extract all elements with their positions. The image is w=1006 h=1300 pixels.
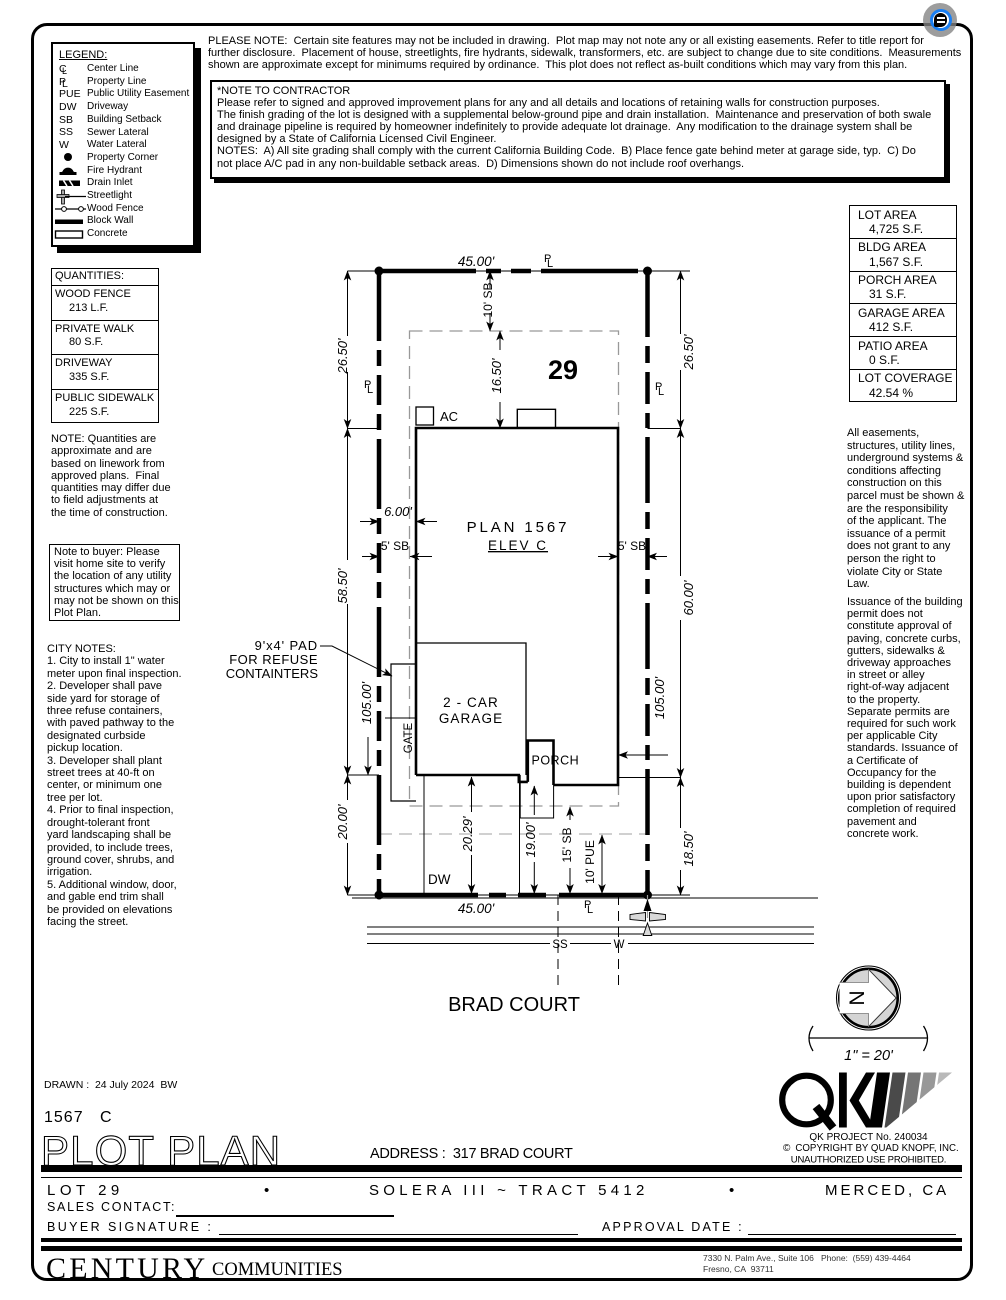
svg-text:QK PROJECT No. 240034: QK PROJECT No. 240034: [809, 1132, 928, 1143]
svg-text:26.50': 26.50': [335, 338, 350, 375]
svg-text:45.00': 45.00': [458, 901, 495, 916]
svg-text:DW: DW: [428, 872, 451, 887]
svg-text:6.00': 6.00': [384, 504, 412, 519]
svg-text:20.29': 20.29': [460, 816, 475, 853]
svg-text:2 - CAR: 2 - CAR: [443, 695, 499, 710]
svg-text:105.00': 105.00': [652, 676, 667, 719]
svg-text:L: L: [587, 904, 593, 916]
svg-text:20.00': 20.00': [335, 804, 350, 841]
svg-text:GATE: GATE: [403, 722, 415, 753]
svg-text:105.00': 105.00': [359, 681, 374, 724]
svg-text:SS: SS: [552, 939, 568, 951]
svg-text:FOR REFUSE: FOR REFUSE: [229, 652, 318, 667]
svg-text:10' SB: 10' SB: [481, 283, 495, 318]
svg-text:5' SB: 5' SB: [618, 539, 646, 553]
svg-text:BRAD COURT: BRAD COURT: [448, 994, 580, 1016]
svg-text:45.00': 45.00': [458, 254, 495, 269]
svg-text:29: 29: [548, 355, 578, 385]
svg-text:19.00': 19.00': [523, 822, 538, 858]
svg-text:ELEV C: ELEV C: [488, 538, 548, 553]
svg-text:26.50': 26.50': [681, 334, 696, 371]
svg-text:W: W: [614, 939, 625, 951]
svg-text:©: ©: [783, 1143, 791, 1154]
svg-text:L: L: [367, 384, 373, 396]
svg-text:L: L: [658, 386, 664, 398]
svg-text:60.00': 60.00': [681, 580, 696, 616]
svg-text:CONTAINTERS: CONTAINTERS: [226, 666, 319, 681]
svg-text:N: N: [845, 990, 868, 1005]
svg-text:16.50': 16.50': [489, 358, 504, 394]
svg-text:58.50': 58.50': [335, 568, 350, 604]
svg-text:9'x4' PAD: 9'x4' PAD: [255, 638, 318, 653]
svg-text:1" = 20': 1" = 20': [844, 1048, 894, 1064]
svg-text:15' SB: 15' SB: [560, 828, 574, 863]
svg-text:5' SB: 5' SB: [381, 539, 409, 553]
svg-text:PLAN 1567: PLAN 1567: [467, 519, 570, 536]
svg-text:PORCH: PORCH: [532, 754, 580, 768]
svg-text:COPYRIGHT BY QUAD KNOPF, INC.: COPYRIGHT BY QUAD KNOPF, INC.: [795, 1143, 958, 1154]
svg-text:GARAGE: GARAGE: [439, 711, 503, 726]
svg-text:L: L: [547, 258, 553, 270]
svg-text:AC: AC: [440, 409, 458, 424]
svg-text:10' PUE: 10' PUE: [583, 840, 597, 884]
svg-text:18.50': 18.50': [681, 831, 696, 867]
